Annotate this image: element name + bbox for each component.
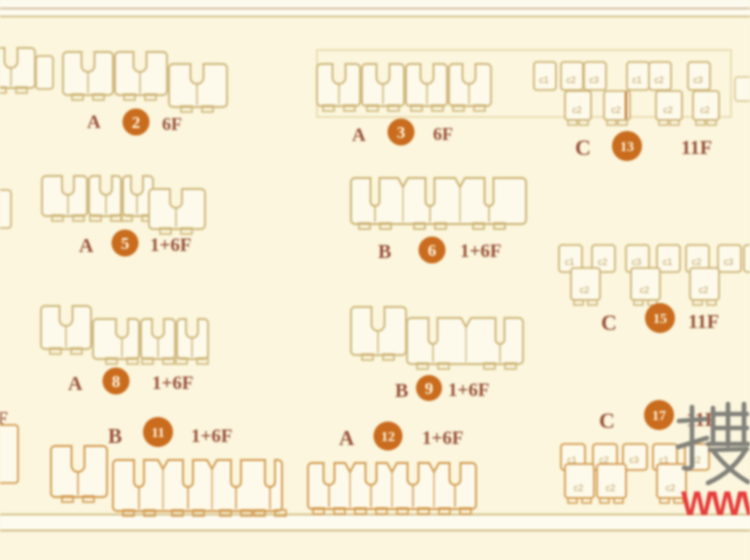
svg-text:c2: c2 <box>666 483 676 493</box>
svg-text:c2: c2 <box>606 483 616 493</box>
svg-text:1+6F: 1+6F <box>422 428 463 449</box>
svg-text:c2: c2 <box>580 285 590 295</box>
svg-text:8: 8 <box>112 372 121 391</box>
svg-text:1+6F: 1+6F <box>191 426 232 447</box>
svg-text:9: 9 <box>425 379 434 398</box>
svg-text:C: C <box>575 135 591 160</box>
svg-text:c2: c2 <box>566 75 576 85</box>
svg-text:2: 2 <box>132 113 141 132</box>
svg-text:A: A <box>352 125 366 146</box>
svg-text:c1: c1 <box>663 257 673 267</box>
svg-text:15: 15 <box>653 312 667 327</box>
svg-text:6F: 6F <box>433 124 453 144</box>
svg-text:c2: c2 <box>574 483 584 493</box>
svg-text:A: A <box>68 373 83 395</box>
svg-text:c3: c3 <box>724 257 734 267</box>
svg-text:c2: c2 <box>640 285 650 295</box>
svg-text:A: A <box>87 112 101 133</box>
svg-text:c2: c2 <box>572 105 582 115</box>
svg-text:3: 3 <box>397 123 406 142</box>
svg-text:17: 17 <box>652 409 666 424</box>
svg-text:1+6F: 1+6F <box>152 373 193 394</box>
svg-text:c2: c2 <box>598 257 608 267</box>
svg-text:c2: c2 <box>699 285 709 295</box>
svg-text:1+6F: 1+6F <box>460 241 501 262</box>
svg-text:11: 11 <box>151 426 164 441</box>
svg-text:c2: c2 <box>611 105 621 115</box>
svg-text:6: 6 <box>428 241 437 260</box>
svg-text:12: 12 <box>381 430 395 445</box>
svg-text:B: B <box>108 424 122 448</box>
svg-text:WWW: WWW <box>681 485 750 523</box>
svg-text:A: A <box>339 426 355 450</box>
svg-text:C: C <box>601 310 617 335</box>
svg-text:C: C <box>599 408 615 433</box>
svg-text:A: A <box>79 235 94 257</box>
svg-text:5: 5 <box>121 234 130 253</box>
svg-text:c1: c1 <box>539 75 549 85</box>
svg-text:c3: c3 <box>632 257 642 267</box>
svg-text:c3: c3 <box>589 75 599 85</box>
svg-text:c3: c3 <box>693 75 703 85</box>
svg-text:B: B <box>395 380 408 402</box>
svg-text:1+6F: 1+6F <box>448 380 489 401</box>
svg-text:c2: c2 <box>663 105 673 115</box>
svg-text:13: 13 <box>620 140 634 155</box>
svg-text:B: B <box>378 241 391 263</box>
svg-text:11F: 11F <box>688 311 719 333</box>
svg-text:c1: c1 <box>565 257 575 267</box>
svg-text:11F: 11F <box>681 137 712 159</box>
svg-text:c2: c2 <box>692 257 702 267</box>
svg-text:c2: c2 <box>700 105 710 115</box>
svg-text:6F: 6F <box>162 114 182 134</box>
svg-text:c3: c3 <box>629 455 639 465</box>
svg-text:c2: c2 <box>654 75 664 85</box>
svg-text:1+6F: 1+6F <box>150 235 191 256</box>
svg-text:c1: c1 <box>632 75 642 85</box>
